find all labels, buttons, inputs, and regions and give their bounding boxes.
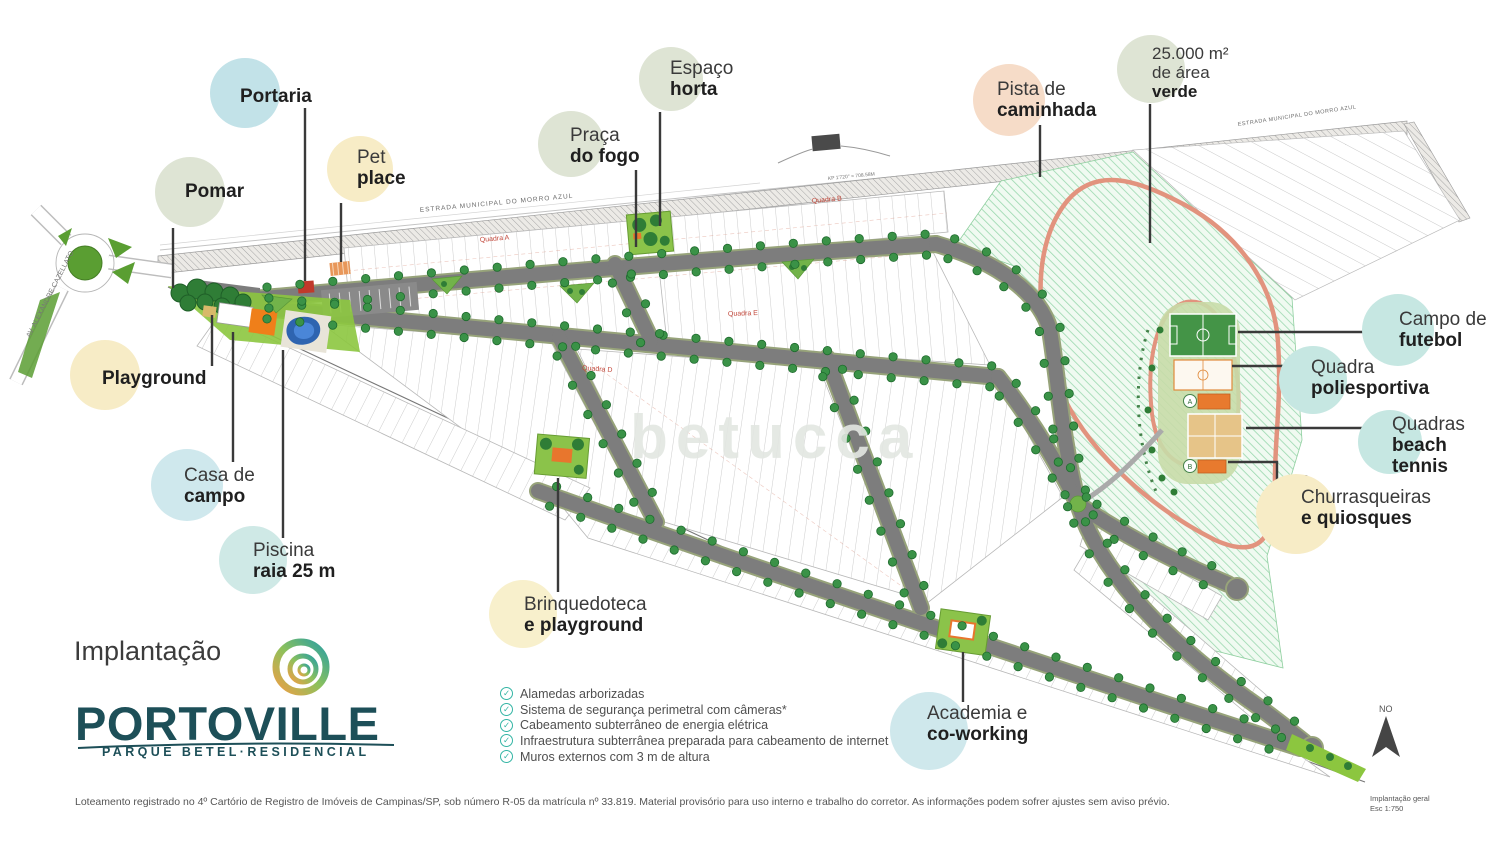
check-icon: ✓ <box>500 719 513 732</box>
callout-text: co-working <box>927 724 1028 745</box>
callout-text: Espaço <box>670 58 733 79</box>
callout-text: horta <box>670 79 733 100</box>
callout-text: caminhada <box>997 100 1096 121</box>
callout-text: Pet <box>357 147 406 168</box>
callout-text: Portaria <box>240 86 312 107</box>
watermark: betucca <box>630 403 920 472</box>
callout-text: e quiosques <box>1301 508 1431 529</box>
check-icon: ✓ <box>500 734 513 747</box>
checklist-item: ✓Muros externos com 3 m de altura <box>500 749 888 765</box>
callout-text: Pista de <box>997 79 1096 100</box>
legal-footer: Loteamento registrado no 4º Cartório de … <box>75 796 1170 808</box>
checklist-item: ✓Infraestrutura subterrânea preparada pa… <box>500 733 888 749</box>
callout-text: Praça <box>570 125 640 146</box>
callout-text: Playground <box>102 368 207 389</box>
callout-text: Quadras <box>1392 414 1465 435</box>
horta-plaza <box>626 211 673 255</box>
beach-tennis-courts <box>1188 414 1242 458</box>
callout-text: poliesportiva <box>1311 378 1429 399</box>
callout-text: Churrasqueiras <box>1301 487 1431 508</box>
callout-text: Quadra <box>1311 357 1429 378</box>
features-checklist: ✓Alamedas arborizadas ✓Sistema de segura… <box>500 686 888 764</box>
checklist-text: Alamedas arborizadas <box>520 687 644 701</box>
portoville-logo-icon <box>270 638 332 705</box>
kiosk-b-letter: B <box>1188 464 1193 471</box>
title-block: Implantação PORTOVILLE PARQUE BETEL·RESI… <box>74 636 414 667</box>
callout-text: Campo de <box>1399 309 1487 330</box>
checklist-text: Muros externos com 3 m de altura <box>520 750 710 764</box>
callout-text: tennis <box>1392 456 1465 477</box>
checklist-item: ✓Cabeamento subterrâneo de energia elétr… <box>500 717 888 733</box>
country-house <box>217 303 253 328</box>
checklist-text: Infraestrutura subterrânea preparada par… <box>520 734 888 748</box>
compass-label: NO <box>1379 704 1393 714</box>
callout-text: futebol <box>1399 330 1487 351</box>
check-icon: ✓ <box>500 750 513 763</box>
scale-value: Esc 1:750 <box>1370 804 1403 813</box>
playground-structure <box>202 305 216 318</box>
callout-text: do fogo <box>570 146 640 167</box>
brinquedoteca-plaza <box>534 434 589 478</box>
callout-text: de área <box>1152 63 1229 82</box>
road-label-right: ESTRADA MUNICIPAL DO MORRO AZUL <box>1237 104 1356 128</box>
callout-text: 25.000 m² <box>1152 44 1229 63</box>
callout-text: verde <box>1152 82 1229 101</box>
checklist-item: ✓Alamedas arborizadas <box>500 686 888 702</box>
check-icon: ✓ <box>500 703 513 716</box>
callout-text: place <box>357 168 406 189</box>
scale-title: Implantação geral <box>1370 794 1430 803</box>
kiosk-a: A <box>1184 394 1231 409</box>
checklist-text: Sistema de segurança perimetral com câme… <box>520 703 787 717</box>
checklist-item: ✓Sistema de segurança perimetral com câm… <box>500 702 888 718</box>
scale-note: Implantação geral Esc 1:750 <box>1370 794 1430 813</box>
callout-text: e playground <box>524 615 647 636</box>
callout-text: Pomar <box>185 181 244 202</box>
callout-text: Brinquedoteca <box>524 594 647 615</box>
north-arrow-icon <box>1372 716 1400 757</box>
pet-place-area <box>329 261 350 276</box>
callout-text: Academia e <box>927 703 1028 724</box>
soccer-field <box>1170 314 1236 356</box>
callout-text: raia 25 m <box>253 561 335 582</box>
callout-text: Piscina <box>253 540 335 561</box>
kiosk-b: B <box>1184 460 1227 474</box>
brand-subtitle: PARQUE BETEL·RESIDENCIAL <box>102 745 370 759</box>
kiosk-a-letter: A <box>1188 399 1193 406</box>
callout-text: Casa de <box>184 465 255 486</box>
check-icon: ✓ <box>500 687 513 700</box>
quadra-e-label: Quadra E <box>728 310 759 318</box>
callout-text: beach <box>1392 435 1465 456</box>
callout-text: campo <box>184 486 255 507</box>
road-gate-structure <box>778 134 890 163</box>
multisport-court <box>1174 360 1232 390</box>
page-title: Implantação <box>74 636 414 667</box>
academia-plaza <box>935 609 990 656</box>
compass: NO <box>1372 704 1400 757</box>
checklist-text: Cabeamento subterrâneo de energia elétri… <box>520 718 768 732</box>
